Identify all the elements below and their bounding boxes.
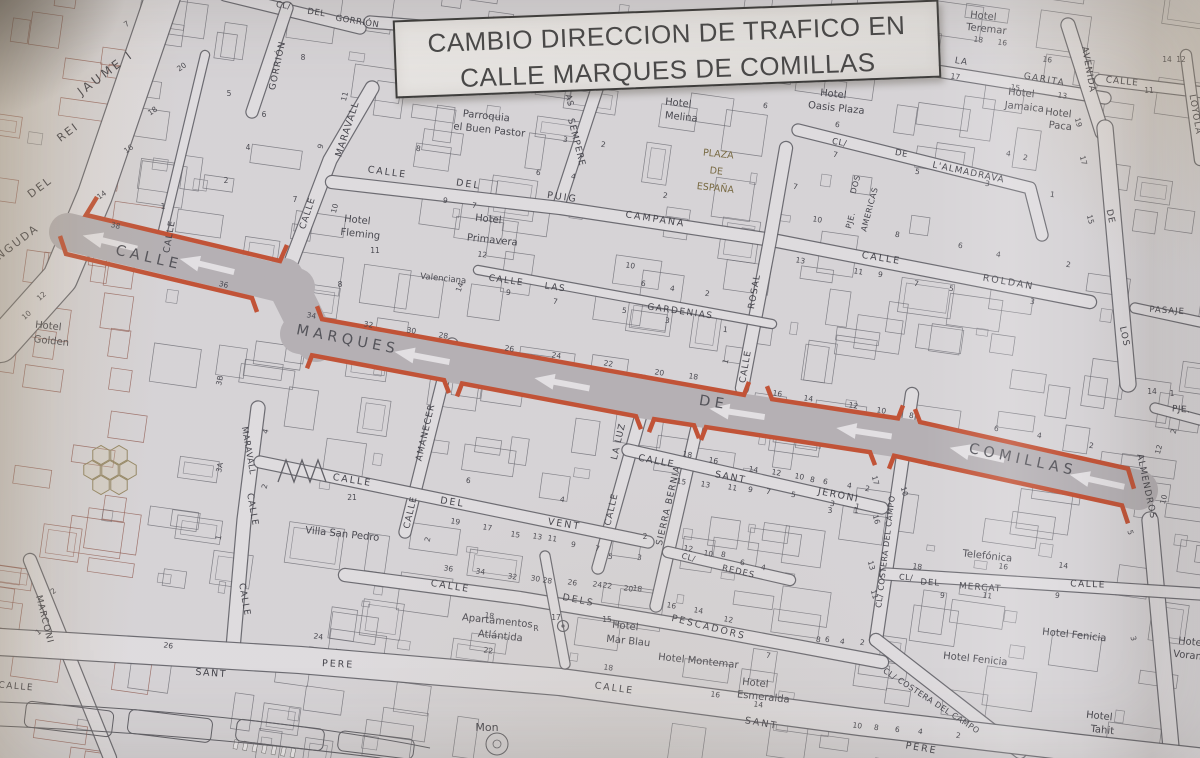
- house-number: 17: [1078, 155, 1089, 167]
- building: [894, 105, 918, 136]
- park-honeycomb-hex: [111, 446, 127, 465]
- house-number: 5: [227, 89, 232, 98]
- house-number: 1: [722, 325, 728, 335]
- building: [1010, 370, 1047, 393]
- house-number: 4: [839, 637, 845, 647]
- building-small: [288, 708, 300, 721]
- building-inner: [363, 403, 386, 431]
- house-number: 1: [214, 534, 224, 541]
- building: [909, 605, 959, 647]
- street-label: SANT: [195, 667, 227, 680]
- place-label: Hotel: [1086, 710, 1114, 724]
- house-number: 15: [676, 476, 687, 487]
- place-label: Hotel: [665, 97, 693, 111]
- house-number: 16: [1042, 54, 1053, 64]
- street-label: DEL: [25, 174, 55, 201]
- place-label: Hotel: [820, 88, 848, 102]
- house-number: 8: [415, 144, 421, 154]
- building-small: [677, 594, 684, 603]
- building: [108, 368, 132, 392]
- house-number: 30: [530, 573, 541, 583]
- house-number: 6: [824, 635, 830, 645]
- building: [260, 703, 301, 736]
- house-number: 8: [338, 280, 343, 289]
- building-small: [152, 158, 168, 171]
- house-number: 7: [832, 150, 838, 160]
- building: [162, 569, 187, 589]
- building: [175, 209, 223, 238]
- building: [470, 0, 499, 4]
- building: [203, 175, 234, 192]
- building-small: [1114, 710, 1124, 723]
- park-honeycomb-hex: [120, 461, 136, 480]
- house-number: 34: [475, 566, 486, 576]
- building-inner: [183, 462, 214, 477]
- house-number: 3B: [214, 375, 225, 387]
- house-number: 14: [748, 464, 759, 475]
- building: [1134, 177, 1172, 205]
- place-label: Villa San Pedro: [305, 525, 380, 544]
- main-road-layer: [60, 197, 1138, 523]
- house-number: 20: [654, 367, 665, 377]
- house-number: 18: [973, 34, 984, 44]
- building-inner: [647, 148, 666, 180]
- place-label: Oasis Plaza: [807, 100, 865, 117]
- fountain-icon-dot: [561, 624, 564, 627]
- house-number: 5: [1125, 529, 1135, 536]
- house-number: 15: [1010, 82, 1021, 92]
- house-number: 20: [175, 60, 188, 73]
- house-number: 12: [723, 614, 734, 625]
- building: [1165, 503, 1200, 523]
- place-label: Hotel Montemar: [658, 652, 740, 671]
- promenade-bed: [127, 709, 213, 743]
- house-number: 8: [809, 475, 815, 485]
- building: [1012, 128, 1041, 171]
- house-number: 2: [864, 484, 870, 494]
- building-small: [157, 573, 171, 584]
- building: [1010, 511, 1056, 540]
- house-number: 32: [363, 319, 374, 330]
- house-number: 6: [993, 424, 999, 434]
- building: [1063, 425, 1090, 454]
- building: [250, 144, 303, 169]
- house-number: 12: [1176, 55, 1186, 64]
- street-label: CL/: [831, 137, 848, 150]
- house-number: 4: [846, 481, 852, 491]
- house-number: 3: [828, 506, 833, 515]
- house-number: 36: [443, 563, 454, 573]
- building: [359, 264, 411, 309]
- building: [982, 666, 1037, 712]
- house-number: 13: [795, 255, 806, 265]
- street-label: AS: [563, 93, 576, 107]
- house-number: 19: [450, 516, 461, 526]
- house-number: 1: [854, 506, 859, 515]
- house-number: 2: [662, 191, 668, 201]
- house-number: 15: [510, 529, 521, 539]
- building: [0, 175, 19, 203]
- building: [100, 293, 134, 332]
- building: [28, 12, 63, 49]
- house-number: 2: [1088, 441, 1094, 451]
- house-number: 9: [316, 143, 326, 150]
- house-number: 17: [950, 71, 961, 81]
- house-number: 1: [1170, 389, 1175, 398]
- building: [243, 359, 283, 380]
- house-number: 22: [603, 358, 614, 368]
- building: [771, 609, 821, 639]
- house-number: 14: [1162, 55, 1172, 64]
- house-number: 18: [682, 449, 693, 460]
- building: [10, 18, 30, 44]
- house-number: 6: [262, 110, 267, 119]
- building: [284, 387, 319, 430]
- house-number: 14: [693, 605, 704, 616]
- house-number: 3: [1029, 297, 1035, 307]
- building-small: [362, 601, 370, 607]
- house-number: 2: [1169, 428, 1179, 435]
- house-number: 11: [982, 590, 993, 600]
- building: [441, 0, 463, 8]
- building: [1045, 385, 1070, 419]
- house-number: 10: [812, 214, 823, 224]
- building: [1162, 0, 1200, 30]
- building: [149, 343, 201, 388]
- house-number: 9: [442, 196, 448, 206]
- street-label: AMERICAS: [859, 186, 879, 232]
- street-label: CALLE: [1070, 579, 1106, 590]
- crosswalk-dash: [281, 747, 287, 757]
- house-number: 6: [834, 120, 840, 130]
- place-label: Golden: [33, 334, 69, 349]
- house-number: 4: [559, 495, 565, 505]
- crosswalk-dash: [233, 740, 239, 750]
- house-number: 6: [640, 279, 646, 289]
- house-number: 22: [602, 580, 613, 590]
- place-label: Melina: [664, 110, 698, 124]
- street-label: PJE.: [1171, 404, 1190, 415]
- place-label: PLAZA: [702, 147, 734, 161]
- building-small: [790, 322, 799, 335]
- street-label: AVINGUDA: [0, 222, 41, 277]
- house-number: 13: [532, 531, 543, 541]
- street-label: MERCAT: [959, 582, 1002, 595]
- house-number: 7: [913, 279, 919, 289]
- place-label: el Buen Pastor: [453, 121, 527, 140]
- house-number: 28: [438, 330, 449, 340]
- building: [1016, 489, 1073, 536]
- street-label: DOS: [849, 174, 863, 195]
- building: [884, 688, 910, 706]
- house-number: 14: [753, 699, 764, 709]
- building: [433, 105, 456, 143]
- building-inner: [1167, 0, 1200, 25]
- building: [959, 96, 995, 141]
- building-inner: [1140, 182, 1167, 199]
- street-label: CL/: [899, 573, 914, 583]
- place-label: Hotel: [344, 214, 372, 228]
- house-number: 16: [710, 689, 721, 699]
- house-number: 13: [1057, 90, 1068, 100]
- building: [835, 327, 880, 346]
- house-number: 4: [261, 428, 271, 435]
- building: [328, 607, 358, 642]
- house-number: 4: [669, 284, 675, 294]
- house-number: 6: [822, 477, 828, 487]
- building: [409, 523, 461, 555]
- house-number: 2: [260, 483, 270, 490]
- house-number: 12: [771, 467, 782, 478]
- house-number: 24: [551, 350, 562, 360]
- building: [467, 284, 504, 321]
- building-inner: [45, 529, 76, 556]
- street: [0, 0, 165, 345]
- map-photo: CALLEMARQUESDECOMILLASJAUME IREIDELAVING…: [0, 0, 1200, 758]
- building: [801, 344, 829, 383]
- building: [393, 682, 431, 716]
- place-label: Voramar: [1173, 649, 1200, 664]
- building: [170, 510, 200, 530]
- house-number: 3A: [214, 461, 225, 473]
- house-number: 8: [301, 53, 306, 62]
- building: [357, 397, 391, 436]
- house-number: 2: [423, 536, 433, 543]
- roundabout-icon: [486, 733, 508, 755]
- house-number: 7: [293, 195, 298, 204]
- place-label: Teremar: [965, 22, 1008, 37]
- house-number: 16: [708, 455, 719, 466]
- building-small: [27, 132, 42, 145]
- house-number: 1: [1049, 190, 1055, 200]
- building: [108, 411, 147, 442]
- building: [885, 302, 908, 335]
- house-number: 11: [339, 90, 350, 102]
- house-number: 5: [790, 490, 796, 500]
- house-number: 17: [482, 522, 493, 532]
- house-number: 2: [643, 532, 648, 541]
- place-label: Hotel: [970, 10, 998, 24]
- building-small: [397, 640, 410, 650]
- building-inner: [365, 604, 399, 634]
- place-label: Primavera: [466, 232, 518, 248]
- building-small: [750, 173, 758, 185]
- house-number: 2: [1022, 153, 1028, 163]
- house-number: 9: [505, 288, 511, 298]
- place-label: Mar Blau: [606, 634, 651, 650]
- place-label: Atlántida: [477, 628, 523, 645]
- house-number: 7: [792, 182, 798, 192]
- building-small: [453, 208, 460, 217]
- house-number: 11: [547, 533, 558, 543]
- house-number: 2: [704, 289, 710, 299]
- building: [13, 465, 52, 488]
- house-number: 9: [877, 270, 883, 280]
- building: [216, 345, 248, 378]
- house-number: 9: [939, 591, 945, 601]
- house-number: 2: [859, 638, 865, 648]
- place-label: Fleming: [340, 227, 381, 242]
- house-number: 13: [700, 479, 711, 490]
- building: [819, 735, 849, 751]
- building: [525, 133, 546, 170]
- building-inner: [266, 708, 295, 730]
- place-label: ESPAÑA: [696, 181, 735, 196]
- house-number: 6: [957, 241, 963, 251]
- house-number: 2: [600, 140, 606, 150]
- house-number: 16: [772, 388, 783, 398]
- building: [854, 315, 904, 355]
- house-number: 11: [1144, 86, 1154, 95]
- house-number: 4: [995, 250, 1001, 260]
- house-number: 6: [535, 168, 541, 178]
- building-inner: [903, 283, 949, 313]
- house-number: 18: [484, 610, 495, 620]
- house-number: 12: [1153, 443, 1164, 455]
- building: [1132, 209, 1157, 234]
- house-number: 3: [562, 135, 568, 145]
- house-number: 18: [632, 583, 643, 593]
- building: [1195, 545, 1200, 567]
- building: [462, 444, 517, 477]
- house-number: 11: [727, 482, 738, 493]
- house-number: 19: [1073, 117, 1084, 129]
- building: [989, 334, 1015, 356]
- building: [804, 340, 838, 384]
- house-number: 17: [870, 475, 881, 487]
- house-number: 14: [803, 393, 814, 403]
- building: [33, 720, 87, 745]
- building: [1053, 0, 1085, 4]
- building: [359, 599, 404, 641]
- building: [40, 524, 83, 563]
- building-small: [1039, 543, 1054, 557]
- place-label: Hotel: [1178, 636, 1200, 650]
- house-number: 6: [762, 101, 768, 111]
- street: [0, 642, 1200, 758]
- street: [158, 55, 205, 252]
- building: [1165, 208, 1195, 234]
- house-number: 18: [146, 104, 159, 117]
- house-number: 10: [329, 202, 340, 214]
- building: [915, 324, 963, 354]
- house-number: 1: [161, 202, 166, 211]
- house-number: 7: [765, 651, 771, 661]
- street-label: CALLE: [367, 164, 408, 180]
- house-number: 26: [163, 640, 174, 650]
- house-number: 26: [567, 577, 578, 587]
- building: [781, 526, 825, 568]
- building: [834, 335, 877, 359]
- building-small: [166, 289, 179, 303]
- house-number: 24: [313, 631, 324, 641]
- house-number: 32: [507, 571, 518, 581]
- street-label: CALLE: [0, 680, 34, 693]
- crosswalk-dash: [271, 745, 277, 755]
- building: [1179, 361, 1200, 397]
- place-label: Hotel: [1045, 107, 1073, 121]
- building: [214, 32, 238, 60]
- building: [22, 365, 63, 393]
- building-small: [349, 52, 365, 62]
- house-number: 18: [688, 371, 699, 381]
- house-number: 16: [666, 600, 677, 611]
- street: [345, 575, 882, 662]
- building: [0, 113, 22, 138]
- building-small: [218, 581, 226, 593]
- house-number: 8: [894, 230, 900, 240]
- house-number: 10: [794, 471, 805, 482]
- house-number: 14: [1147, 387, 1157, 396]
- building-small: [926, 545, 934, 551]
- building-small: [373, 586, 383, 595]
- building: [909, 215, 930, 235]
- building: [707, 517, 740, 549]
- building: [300, 737, 333, 758]
- house-number: 6: [465, 476, 471, 486]
- building-small: [820, 174, 831, 187]
- house-number: 11: [370, 246, 380, 255]
- house-number: 5: [607, 552, 613, 562]
- house-number: 1: [721, 358, 731, 365]
- street-label: L'ALMADRAVA: [931, 160, 1005, 185]
- building: [825, 289, 851, 327]
- place-label: Jamaica: [1003, 100, 1044, 115]
- park-honeycomb-hex: [93, 476, 109, 495]
- map-canvas: CALLEMARQUESDECOMILLASJAUME IREIDELAVING…: [0, 0, 1200, 758]
- house-number: 7: [765, 487, 771, 497]
- building-small: [574, 468, 591, 479]
- house-number: 3: [984, 179, 990, 189]
- house-number: 9: [1054, 591, 1060, 601]
- street-label: PJE.: [844, 211, 857, 230]
- place-label: Hotel: [612, 620, 640, 634]
- house-number: 10: [625, 260, 636, 270]
- house-number: 7: [552, 297, 558, 307]
- building-small: [1009, 645, 1025, 659]
- house-number: 18: [603, 662, 614, 672]
- house-number: 10: [703, 548, 714, 558]
- house-number: 15: [1085, 214, 1096, 226]
- house-number: 3: [1128, 635, 1138, 642]
- building: [1081, 376, 1108, 409]
- house-number: 10: [852, 720, 863, 730]
- house-number: 22: [483, 645, 494, 655]
- street-label: REI: [54, 120, 81, 145]
- house-number: 14: [1058, 560, 1069, 570]
- house-number: 5: [621, 306, 627, 316]
- street-label: DEL: [920, 577, 940, 588]
- house-number: 18: [912, 561, 923, 571]
- building-small: [373, 453, 383, 466]
- building: [303, 686, 344, 715]
- building: [220, 22, 247, 59]
- house-number: 9: [747, 485, 753, 495]
- street-label: PERE: [322, 658, 355, 671]
- house-number: 30: [406, 325, 417, 335]
- street-label: LAS: [544, 282, 567, 295]
- house-number: 28: [542, 575, 553, 585]
- building: [102, 495, 126, 522]
- park-honeycomb-hex: [84, 461, 100, 480]
- house-number: 12: [477, 249, 488, 259]
- roundabout-icon-inner: [493, 740, 501, 748]
- house-number: 4: [570, 172, 576, 182]
- house-number: 17: [551, 613, 561, 622]
- building-inner: [1185, 367, 1200, 392]
- building: [667, 723, 706, 758]
- house-number: 4: [1005, 149, 1011, 159]
